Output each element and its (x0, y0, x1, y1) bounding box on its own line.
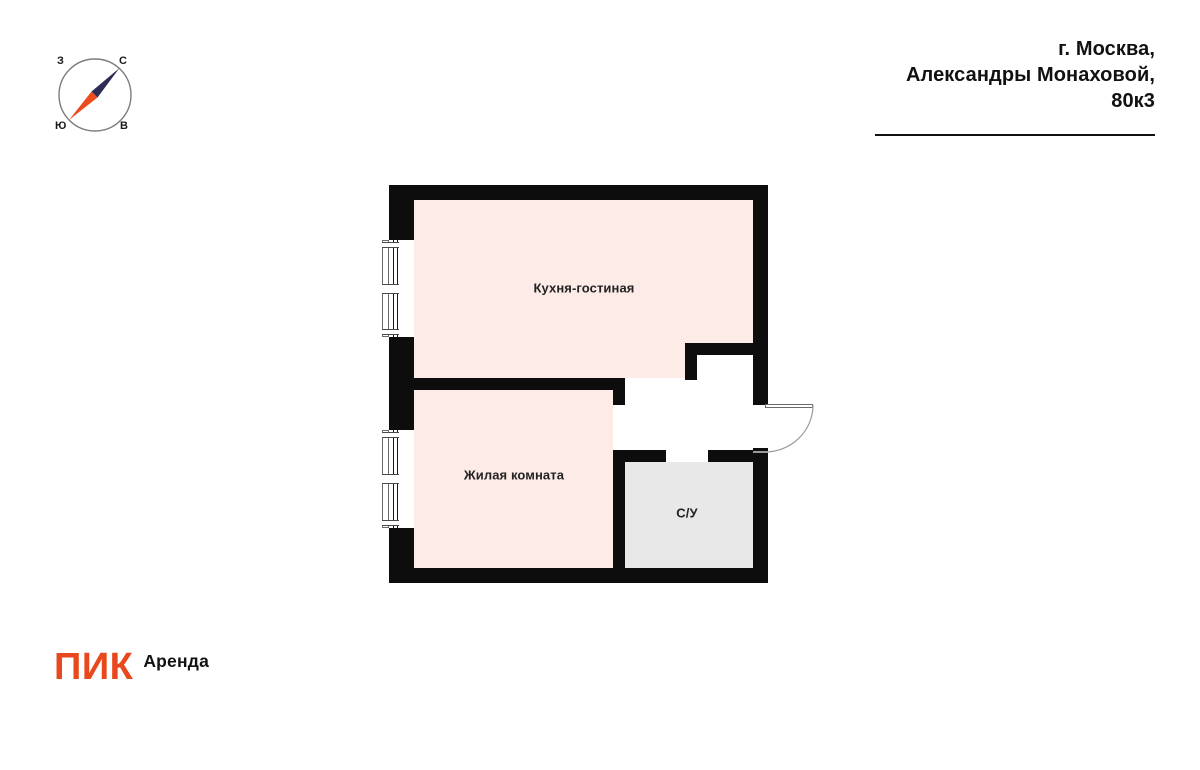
entry-niche-floor (697, 355, 753, 405)
wall-exterior-right-upper (753, 185, 768, 405)
window-1 (382, 240, 414, 337)
wall-living-room-door-stub (613, 378, 625, 405)
window-tick (382, 242, 399, 248)
window-2 (382, 430, 414, 528)
compass: З С Ю В (49, 50, 141, 142)
entrance-door-jamb (753, 451, 768, 453)
wall-bathroom-top-right (708, 450, 753, 462)
wall-exterior-left-lower (389, 528, 414, 583)
header-rule (875, 134, 1155, 136)
window-tick (382, 520, 399, 526)
window-tick (382, 432, 399, 438)
pik-logo-suffix: Аренда (143, 653, 209, 671)
address-street: Александры Монаховой, 80к3 (875, 62, 1155, 114)
wall-exterior-right-lower (753, 448, 768, 583)
compass-needle-south-icon (69, 92, 98, 121)
entrance-door-swing-icon (759, 404, 817, 456)
window-tick (382, 329, 399, 335)
room-label-kitchen-living: Кухня-гостиная (534, 281, 635, 296)
wall-exterior-top (389, 185, 768, 200)
compass-needle-north-icon (92, 68, 120, 98)
pik-arenda-logo: ПИК Аренда (54, 652, 209, 683)
compass-label-south: Ю (55, 121, 66, 132)
compass-label-west: З (57, 56, 64, 67)
room-label-living-room: Жилая комната (464, 468, 564, 483)
address-header: г. Москва, Александры Монаховой, 80к3 (875, 36, 1155, 136)
wall-bathroom-top-left (613, 450, 666, 462)
wall-kitchen-living-divider (414, 378, 625, 390)
wall-exterior-left-upper (389, 185, 414, 240)
wall-exterior-left-middle (389, 337, 414, 430)
address-city: г. Москва, (875, 36, 1155, 62)
wall-entry-niche-left (685, 343, 697, 380)
wall-living-room-right (613, 450, 625, 568)
compass-label-east: В (120, 121, 128, 132)
window-tick (382, 284, 399, 294)
room-label-bathroom: С/У (676, 506, 697, 521)
compass-label-north: С (119, 56, 127, 67)
pik-logo-mark: ПИК (54, 652, 133, 683)
wall-exterior-bottom (389, 568, 768, 583)
floorplan: Кухня-гостиная Жилая комната С/У (389, 185, 768, 583)
window-tick (382, 474, 399, 484)
